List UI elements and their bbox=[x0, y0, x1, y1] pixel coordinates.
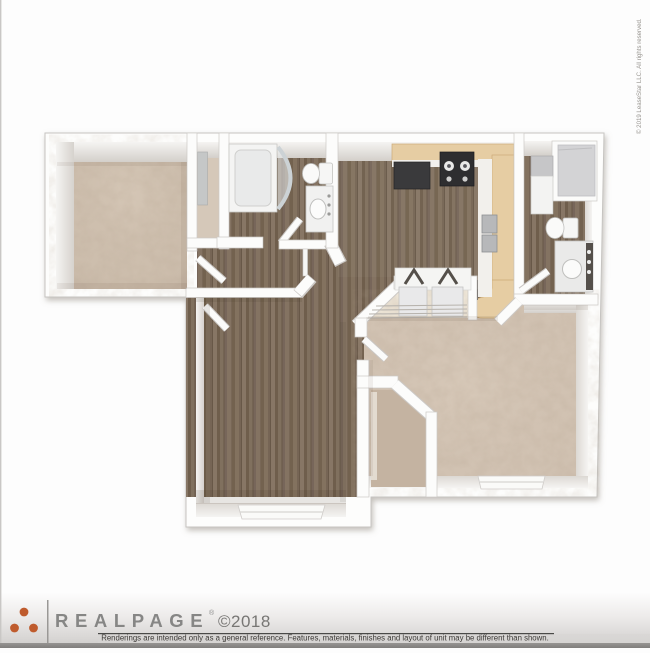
svg-text:Renderings are intended only a: Renderings are intended only as a genera… bbox=[101, 634, 549, 643]
svg-text:© 2019 LeaseStar LLC. All righ: © 2019 LeaseStar LLC. All rights reserve… bbox=[636, 18, 643, 134]
svg-text:REALPAGE: REALPAGE bbox=[55, 610, 209, 631]
svg-text:®: ® bbox=[209, 609, 215, 617]
svg-text:©2018: ©2018 bbox=[218, 612, 271, 631]
